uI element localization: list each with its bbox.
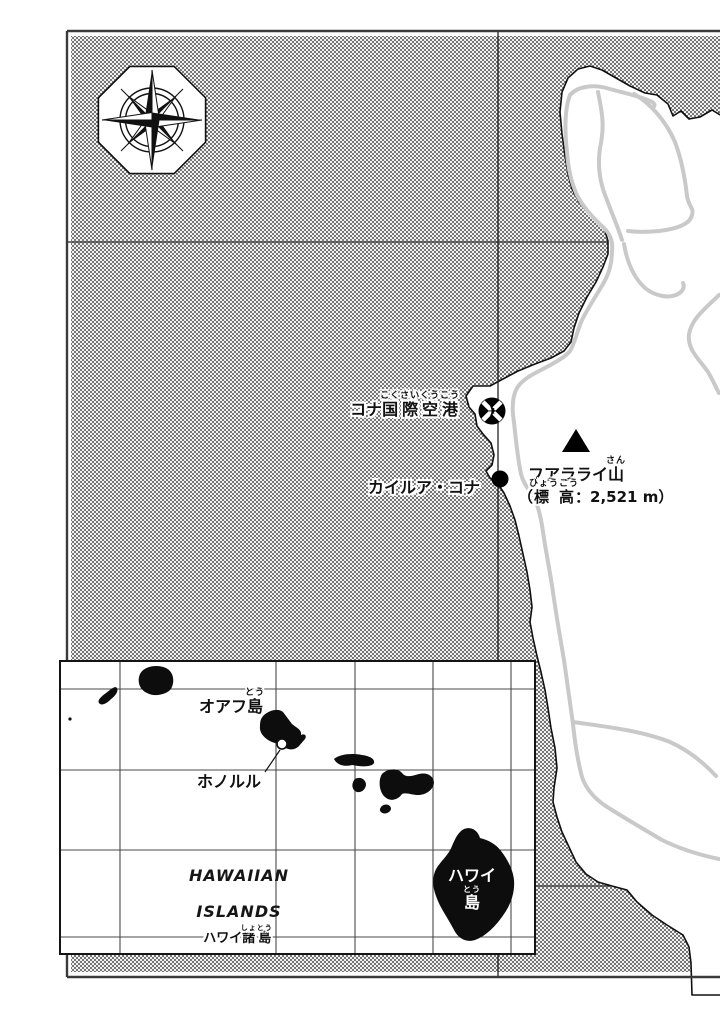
oahu-label: オアフ島とう bbox=[152, 688, 312, 716]
island-kahoolawe bbox=[380, 805, 391, 814]
airport-label-kanji: 国際空港 bbox=[380, 400, 460, 419]
hawaii-island-label: ハワイ 島とう bbox=[412, 866, 532, 912]
inset-title: HAWAIIAN ISLANDS bbox=[79, 858, 399, 930]
island-niihau bbox=[99, 687, 118, 704]
inset-title-line1: HAWAIIAN bbox=[79, 858, 399, 894]
inset-map: オアフ島とう ホノルル HAWAIIAN ISLANDS ハワイ諸島しょとう ハ… bbox=[59, 660, 536, 955]
city-label: カイルア・コナ bbox=[320, 479, 480, 497]
map-page: ✈ コナ国際空港こくさいくうこう カイルア・コナ フアラライ山さん （標高ひょう… bbox=[0, 0, 720, 1024]
honolulu-label: ホノルル bbox=[149, 773, 309, 791]
svg-text:✈: ✈ bbox=[485, 402, 499, 422]
elevation-label-furigana: ひょうこう bbox=[529, 479, 579, 489]
airport-label: コナ国際空港こくさいくうこう bbox=[300, 391, 460, 419]
island-molokai bbox=[334, 754, 374, 766]
airport-label-pre: コナ bbox=[350, 400, 382, 419]
inset-subtitle: ハワイ諸島しょとう bbox=[138, 924, 338, 946]
airport-icon: ✈ bbox=[479, 398, 506, 425]
mountain-label-furigana: さん bbox=[606, 456, 626, 466]
compass-rose-icon bbox=[94, 62, 210, 178]
elevation-label: （標高ひょうこう：2,521 m） bbox=[518, 479, 673, 506]
honolulu-marker bbox=[277, 739, 287, 749]
airport-label-furigana: こくさいくうこう bbox=[380, 391, 460, 401]
elevation-label-kanji: 標高 bbox=[529, 488, 579, 506]
city-dot-icon bbox=[492, 471, 509, 488]
honolulu-leader-line bbox=[265, 750, 280, 772]
island-kaula bbox=[68, 717, 71, 720]
island-lanai bbox=[352, 778, 366, 792]
island-maui bbox=[380, 769, 434, 799]
